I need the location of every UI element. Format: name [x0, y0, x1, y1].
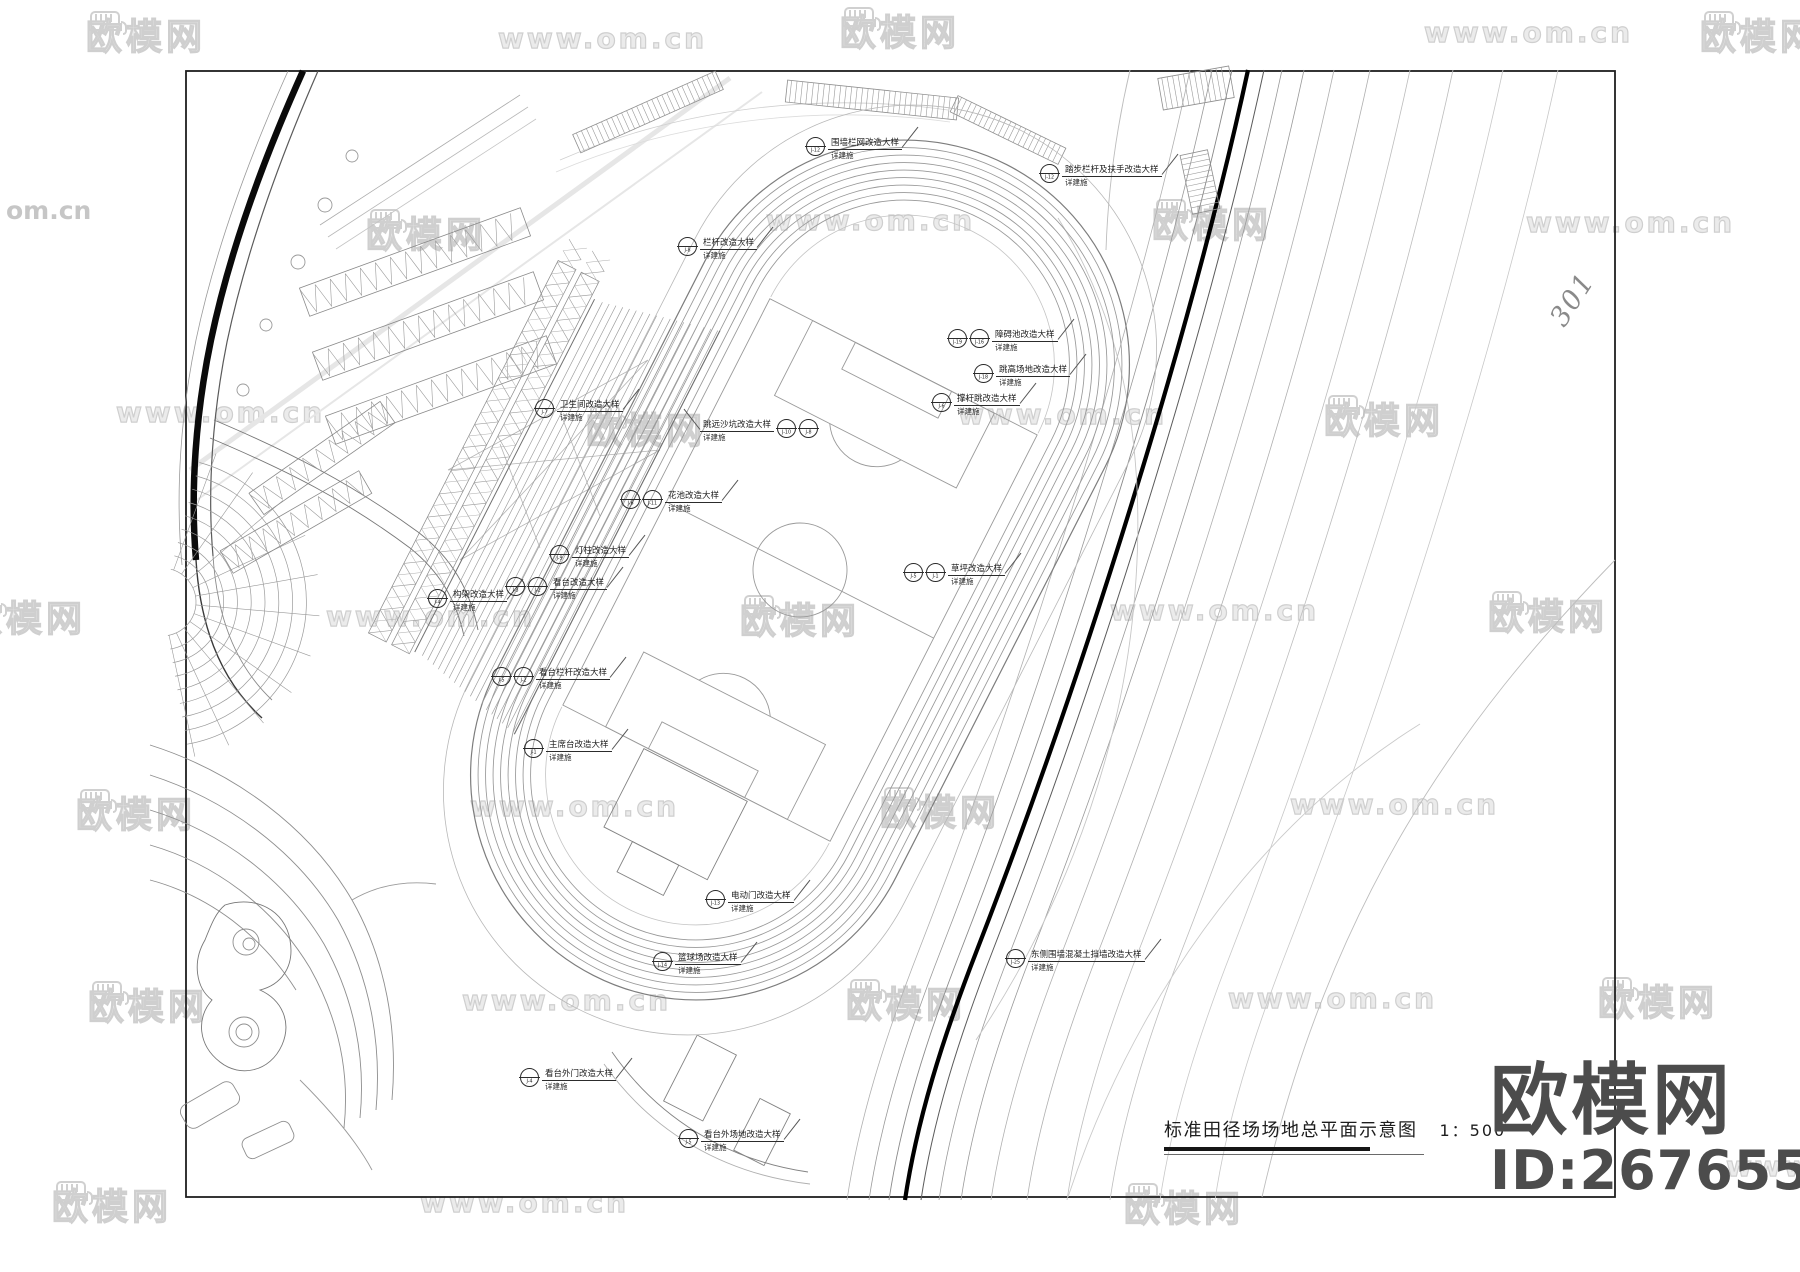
callout-note: 详建施	[675, 965, 741, 976]
detail-callout: J-8J-10跳远沙坑改造大样详建施	[700, 419, 818, 443]
detail-callout: J-14篮球场改造大样详建施	[653, 952, 741, 976]
detail-callout: J-4看台外门改造大样详建施	[520, 1068, 616, 1092]
detail-bubble: J-9	[550, 545, 569, 564]
detail-bubble: J-19	[948, 329, 967, 348]
detail-callout: J-5J-1草坪改造大样详建施	[904, 563, 1005, 587]
detail-bubble: J-4	[520, 1068, 539, 1087]
east-road	[847, 70, 1558, 1200]
callout-note: 详建施	[948, 576, 1005, 587]
detail-callout: J-5看台外场地改造大样详建施	[679, 1129, 784, 1153]
callout-label: 围墙栏网改造大样	[828, 138, 902, 150]
detail-callout: J-6撑杆跳改造大样详建施	[932, 393, 1020, 417]
detail-bubble: J-2	[528, 577, 547, 596]
callout-note: 详建施	[542, 1081, 616, 1092]
detail-bubble: J-8	[678, 237, 697, 256]
callout-label: 卫生间改造大样	[557, 400, 623, 412]
callout-label: 跳高场地改造大样	[996, 365, 1070, 377]
callout-label: 看台栏杆改造大样	[536, 668, 610, 680]
detail-callout: J-18跳高场地改造大样详建施	[974, 364, 1070, 388]
detail-bubble: J-18	[974, 364, 993, 383]
detail-bubble: J-5	[492, 667, 511, 686]
callout-label: 看台外门改造大样	[542, 1069, 616, 1081]
site-id-label: ID:2676558	[1490, 1144, 1800, 1198]
drawing-title: 标准田径场场地总平面示意图	[1164, 1120, 1418, 1141]
callout-note: 详建施	[1028, 962, 1145, 973]
callout-note: 详建施	[992, 342, 1058, 353]
callout-label: 东侧围墙混凝土挡墙改造大样	[1028, 950, 1145, 962]
callout-note: 详建施	[954, 406, 1020, 417]
detail-callout: J-4构架改造大样详建施	[428, 589, 507, 613]
detail-bubble: J-5	[904, 563, 923, 582]
callout-note: 详建施	[536, 680, 610, 691]
callout-note: 详建施	[728, 903, 794, 914]
stage-building	[589, 749, 748, 910]
landscape	[150, 360, 810, 1184]
detail-bubble: J-12	[1040, 164, 1059, 183]
callout-label: 电动门改造大样	[728, 891, 794, 903]
detail-bubble: J-6	[621, 490, 640, 509]
callout-note: 详建施	[550, 590, 607, 601]
detail-bubble: J-4	[428, 589, 447, 608]
callout-label: 看台外场地改造大样	[701, 1130, 784, 1142]
callout-label: 撑杆跳改造大样	[954, 394, 1020, 406]
parking-strips	[220, 208, 556, 574]
callout-note: 详建施	[546, 752, 612, 763]
callout-label: 花池改造大样	[665, 491, 722, 503]
detail-callout: J-13电动门改造大样详建施	[706, 890, 794, 914]
detail-bubble: J-1	[524, 739, 543, 758]
detail-callout: J-5J-2看台栏杆改造大样详建施	[492, 667, 610, 691]
callout-label: 障碍池改造大样	[992, 330, 1058, 342]
detail-callout: J-7卫生间改造大样详建施	[535, 399, 623, 423]
detail-callout: J-6J-11花池改造大样详建施	[621, 490, 722, 514]
detail-bubble: J-1	[926, 563, 945, 582]
detail-callout: J-3J-2看台改造大样详建施	[506, 577, 607, 601]
detail-callout: J-12踏步栏杆及扶手改造大样详建施	[1040, 164, 1162, 188]
callout-note: 详建施	[450, 602, 507, 613]
callout-label: 踏步栏杆及扶手改造大样	[1062, 165, 1162, 177]
drawing-title-block: 标准田径场场地总平面示意图1：500	[1164, 1116, 1506, 1155]
title-underline-thick	[1164, 1147, 1370, 1151]
callout-note: 详建施	[828, 150, 902, 161]
detail-bubble: J-7	[535, 399, 554, 418]
callout-note: 详建施	[701, 1142, 784, 1153]
detail-bubble: J-16	[970, 329, 989, 348]
detail-bubble: J-25	[1006, 949, 1025, 968]
detail-callout: J-1主席台改造大样详建施	[524, 739, 612, 763]
detail-callout: J-25东侧围墙混凝土挡墙改造大样详建施	[1006, 949, 1145, 973]
callout-label: 栏杆改造大样	[700, 238, 757, 250]
callout-note: 详建施	[700, 432, 774, 443]
detail-bubble: J-10	[777, 419, 796, 438]
callout-label: 灯柱改造大样	[572, 546, 629, 558]
detail-callout: J-12围墙栏网改造大样详建施	[806, 137, 902, 161]
callout-label: 主席台改造大样	[546, 740, 612, 752]
detail-bubble: J-6	[932, 393, 951, 412]
callout-label: 跳远沙坑改造大样	[700, 420, 774, 432]
callout-note: 详建施	[700, 250, 757, 261]
callout-note: 详建施	[1062, 177, 1162, 188]
callout-label: 草坪改造大样	[948, 564, 1005, 576]
callout-label: 看台改造大样	[550, 578, 607, 590]
detail-callout: J-19J-16障碍池改造大样详建施	[948, 329, 1058, 353]
site-branding: 欧模网 ID:2676558	[1490, 1062, 1800, 1198]
detail-bubble: J-3	[506, 577, 525, 596]
grandstand	[358, 239, 726, 734]
detail-bubble: J-12	[806, 137, 825, 156]
detail-callout: J-8栏杆改造大样详建施	[678, 237, 757, 261]
detail-callout: J-9灯柱改造大样详建施	[550, 545, 629, 569]
site-logo: 欧模网	[1490, 1062, 1800, 1140]
detail-bubble: J-2	[514, 667, 533, 686]
frame-border	[186, 71, 1615, 1197]
detail-bubble: J-8	[799, 419, 818, 438]
south-gate	[604, 1035, 810, 1184]
west-road	[179, 71, 536, 718]
detail-bubble: J-13	[706, 890, 725, 909]
title-underline-thin	[1164, 1154, 1424, 1155]
detail-bubble: J-5	[679, 1129, 698, 1148]
callout-label: 构架改造大样	[450, 590, 507, 602]
detail-bubble: J-14	[653, 952, 672, 971]
detail-bubble: J-11	[643, 490, 662, 509]
cad-plan-screenshot: 欧模网www.om.cn欧模网www.om.cn欧模网om.cn欧模网www.o…	[0, 0, 1800, 1272]
callout-note: 详建施	[665, 503, 722, 514]
callout-note: 详建施	[557, 412, 623, 423]
callout-label: 篮球场改造大样	[675, 953, 741, 965]
